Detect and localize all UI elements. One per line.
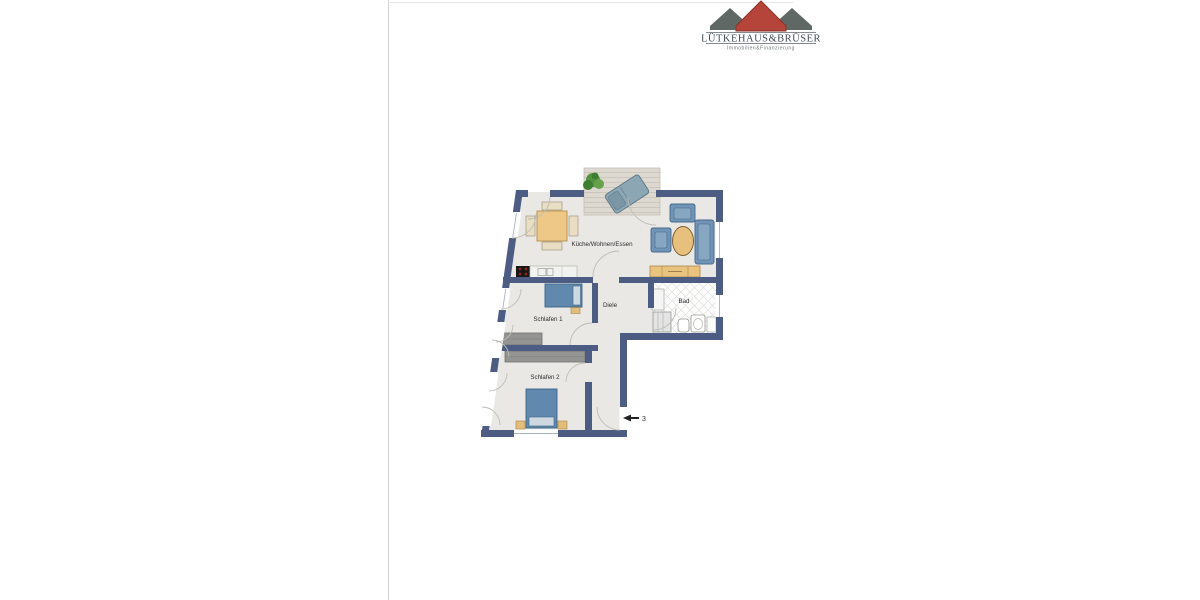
company-logo: LÜTKEHAUS&BRÜSER Immobilien&Finanzierung xyxy=(702,0,820,52)
kitchen-row xyxy=(516,266,577,278)
bath-bottom-wall xyxy=(620,333,723,340)
inner-wall xyxy=(619,277,716,283)
nightstand-icon xyxy=(558,421,567,429)
outer-wall-right xyxy=(716,197,723,340)
room-label-kueche-wohnen-essen: Küche/Wohnen/Essen xyxy=(571,241,633,248)
room-label-schlafen-2: Schlafen 2 xyxy=(530,374,560,381)
room-label-diele: Diele xyxy=(603,302,618,309)
outer-wall-top xyxy=(516,190,528,197)
left-arrow-shaft xyxy=(630,417,639,419)
stove-icon xyxy=(516,266,530,278)
logo-roofs-icon xyxy=(710,1,812,31)
chair-icon xyxy=(542,242,562,250)
nightstand-icon xyxy=(516,421,525,429)
coffee-table-icon xyxy=(673,227,694,256)
inner-wall xyxy=(648,283,654,308)
kitchen-counter xyxy=(530,266,577,278)
inner-wall xyxy=(585,382,592,430)
inner-wall xyxy=(585,345,592,363)
bath-shelf-icon xyxy=(707,317,716,332)
company-tagline: Immobilien&Finanzierung xyxy=(727,46,795,52)
page-left-border xyxy=(388,0,389,600)
pillow xyxy=(573,286,581,305)
floor-plan: Küche/Wohnen/Essen Diele Bad Schlafen 1 … xyxy=(478,160,728,445)
inner-wall xyxy=(592,283,598,323)
chair-icon xyxy=(569,216,578,236)
dining-table-icon xyxy=(537,211,567,241)
company-name: LÜTKEHAUS&BRÜSER xyxy=(702,33,820,45)
room-label-bad: Bad xyxy=(678,298,690,305)
room-label-schlafen-1: Schlafen 1 xyxy=(533,316,563,323)
inner-wall xyxy=(503,277,593,283)
pillow xyxy=(529,417,554,426)
document-page: LÜTKEHAUS&BRÜSER Immobilien&Finanzierung xyxy=(0,0,1200,600)
balcony xyxy=(583,168,660,215)
entrance-unit-number: 3 xyxy=(642,416,646,423)
chair-icon xyxy=(542,202,562,210)
inner-wall xyxy=(494,345,598,351)
toilet-icon xyxy=(678,319,689,332)
red-roof-icon xyxy=(736,1,786,31)
nightstand-icon xyxy=(571,308,580,314)
